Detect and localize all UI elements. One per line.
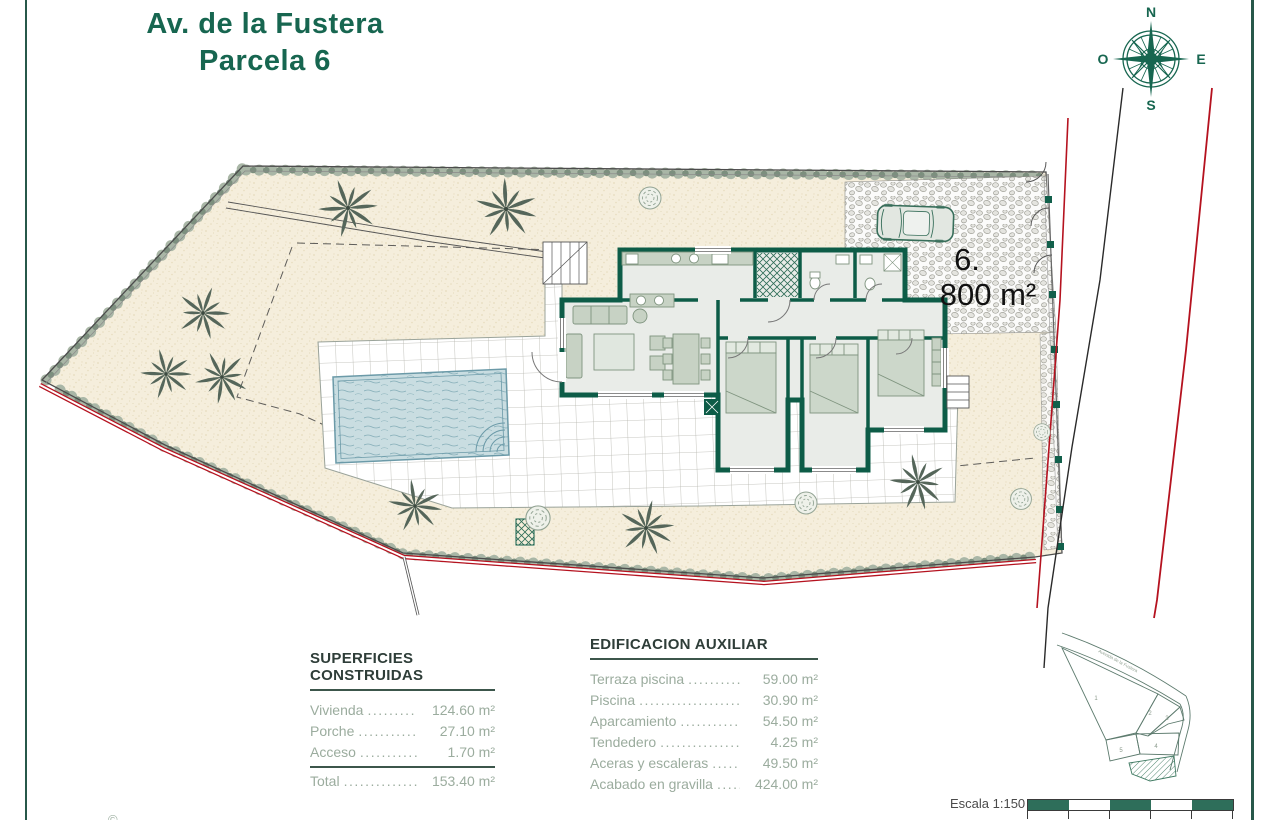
toilet — [810, 277, 820, 289]
bathroom-sink — [836, 255, 849, 264]
scale-tick — [1150, 810, 1151, 819]
minimap-parcel-highlighted — [1129, 756, 1176, 781]
table-row: Acceso 1.70 m² — [310, 742, 495, 763]
scale-bar — [1027, 799, 1234, 811]
scale-segment — [1192, 800, 1233, 810]
scale-segment — [1151, 800, 1192, 810]
entry-stairs — [543, 242, 587, 284]
table-row: Aceras y escaleras 49.50 m² — [590, 753, 818, 774]
bed — [810, 344, 858, 413]
table-row: Porche 27.10 m² — [310, 721, 495, 742]
parcel-number-label: 6. — [954, 242, 980, 277]
sheet-frame-left — [25, 0, 27, 820]
table-row: Vivienda 124.60 m² — [310, 700, 495, 721]
parcel-area-label: 800 m² — [940, 277, 1036, 312]
sofa — [566, 334, 582, 378]
swimming-pool — [333, 369, 509, 463]
bathroom-sink — [860, 255, 872, 264]
scale-label: Escala 1:150 — [950, 796, 1025, 811]
minimap-parcel-number: 2 — [1148, 711, 1152, 717]
dot-leader — [680, 711, 740, 732]
dot-leader — [660, 732, 740, 753]
compass-west-label: O — [1098, 51, 1109, 67]
scale-segment — [1069, 800, 1110, 810]
dining-table — [673, 334, 699, 384]
compass-east-label: E — [1196, 51, 1205, 67]
dot-leader — [639, 690, 740, 711]
kitchen-sink — [672, 254, 681, 263]
scale-tick — [1191, 810, 1192, 819]
round-shrub — [1011, 489, 1032, 510]
edificacion-table: EDIFICACION AUXILIAR Terraza piscina 59.… — [590, 636, 818, 795]
superficies-table: SUPERFICIES CONSTRUIDAS Vivienda 124.60 … — [310, 650, 495, 792]
minimap-parcel-number: 5 — [1119, 748, 1123, 754]
bed — [878, 330, 924, 396]
kitchen-appliance — [626, 254, 638, 264]
plan-title: Av. de la Fustera Parcela 6 — [100, 6, 430, 80]
dot-leader — [358, 721, 417, 742]
round-shrub — [795, 492, 817, 514]
scale-tick — [1232, 810, 1233, 819]
scale-tick — [1068, 810, 1069, 819]
kitchen-hob — [690, 254, 699, 263]
round-shrub — [526, 506, 550, 530]
car — [877, 204, 954, 244]
toilet — [865, 278, 875, 290]
kitchen-appliance — [712, 254, 728, 264]
site-plan: 6. 800 m² — [30, 80, 1255, 710]
scale-tick — [1109, 810, 1110, 819]
table-row: Terraza piscina 59.00 m² — [590, 669, 818, 690]
location-minimap: 1 2 3 4 5 Avenida de la Fustera — [1040, 625, 1255, 795]
kitchen-counter — [622, 252, 753, 265]
edificacion-table-title: EDIFICACION AUXILIAR — [590, 636, 818, 660]
table-row: Tendedero 4.25 m² — [590, 732, 818, 753]
bed — [726, 342, 776, 413]
scale-tick — [1027, 810, 1028, 819]
rug — [594, 334, 634, 370]
superficies-table-title: SUPERFICIES CONSTRUIDAS — [310, 650, 495, 691]
plan-title-line1: Av. de la Fustera — [100, 6, 430, 43]
minimap-parcel-number: 4 — [1154, 744, 1158, 750]
dot-leader — [360, 742, 417, 763]
round-shrub — [639, 187, 661, 209]
side-stairs — [947, 376, 969, 408]
minimap-parcel-number: 1 — [1094, 696, 1098, 702]
table-row: Acabado en gravilla 424.00 m² — [590, 774, 818, 795]
minimap-parcel — [1062, 648, 1158, 740]
porch-hatched-floor — [757, 253, 799, 297]
dot-leader — [717, 774, 740, 795]
drawing-sheet: Av. de la Fustera Parcela 6 — [0, 0, 1280, 820]
kitchen-sink — [637, 296, 646, 305]
scale-segment — [1110, 800, 1151, 810]
table-total-row: Total 153.40 m² — [310, 766, 495, 792]
scale-segment — [1028, 800, 1069, 810]
minimap-parcel — [1106, 734, 1140, 761]
round-shrub — [1034, 424, 1051, 441]
plan-title-line2: Parcela 6 — [100, 43, 430, 80]
compass-north-label: N — [1146, 4, 1156, 20]
dot-leader — [712, 753, 740, 774]
dot-leader — [344, 771, 417, 792]
footer-note: © — [108, 812, 118, 820]
side-table — [633, 309, 647, 323]
dot-leader — [688, 669, 740, 690]
kitchen-hob — [655, 296, 664, 305]
dot-leader — [367, 700, 417, 721]
table-row: Piscina 30.90 m² — [590, 690, 818, 711]
table-row: Aparcamiento 54.50 m² — [590, 711, 818, 732]
sofa — [573, 306, 627, 324]
minimap-road — [1057, 645, 1180, 704]
